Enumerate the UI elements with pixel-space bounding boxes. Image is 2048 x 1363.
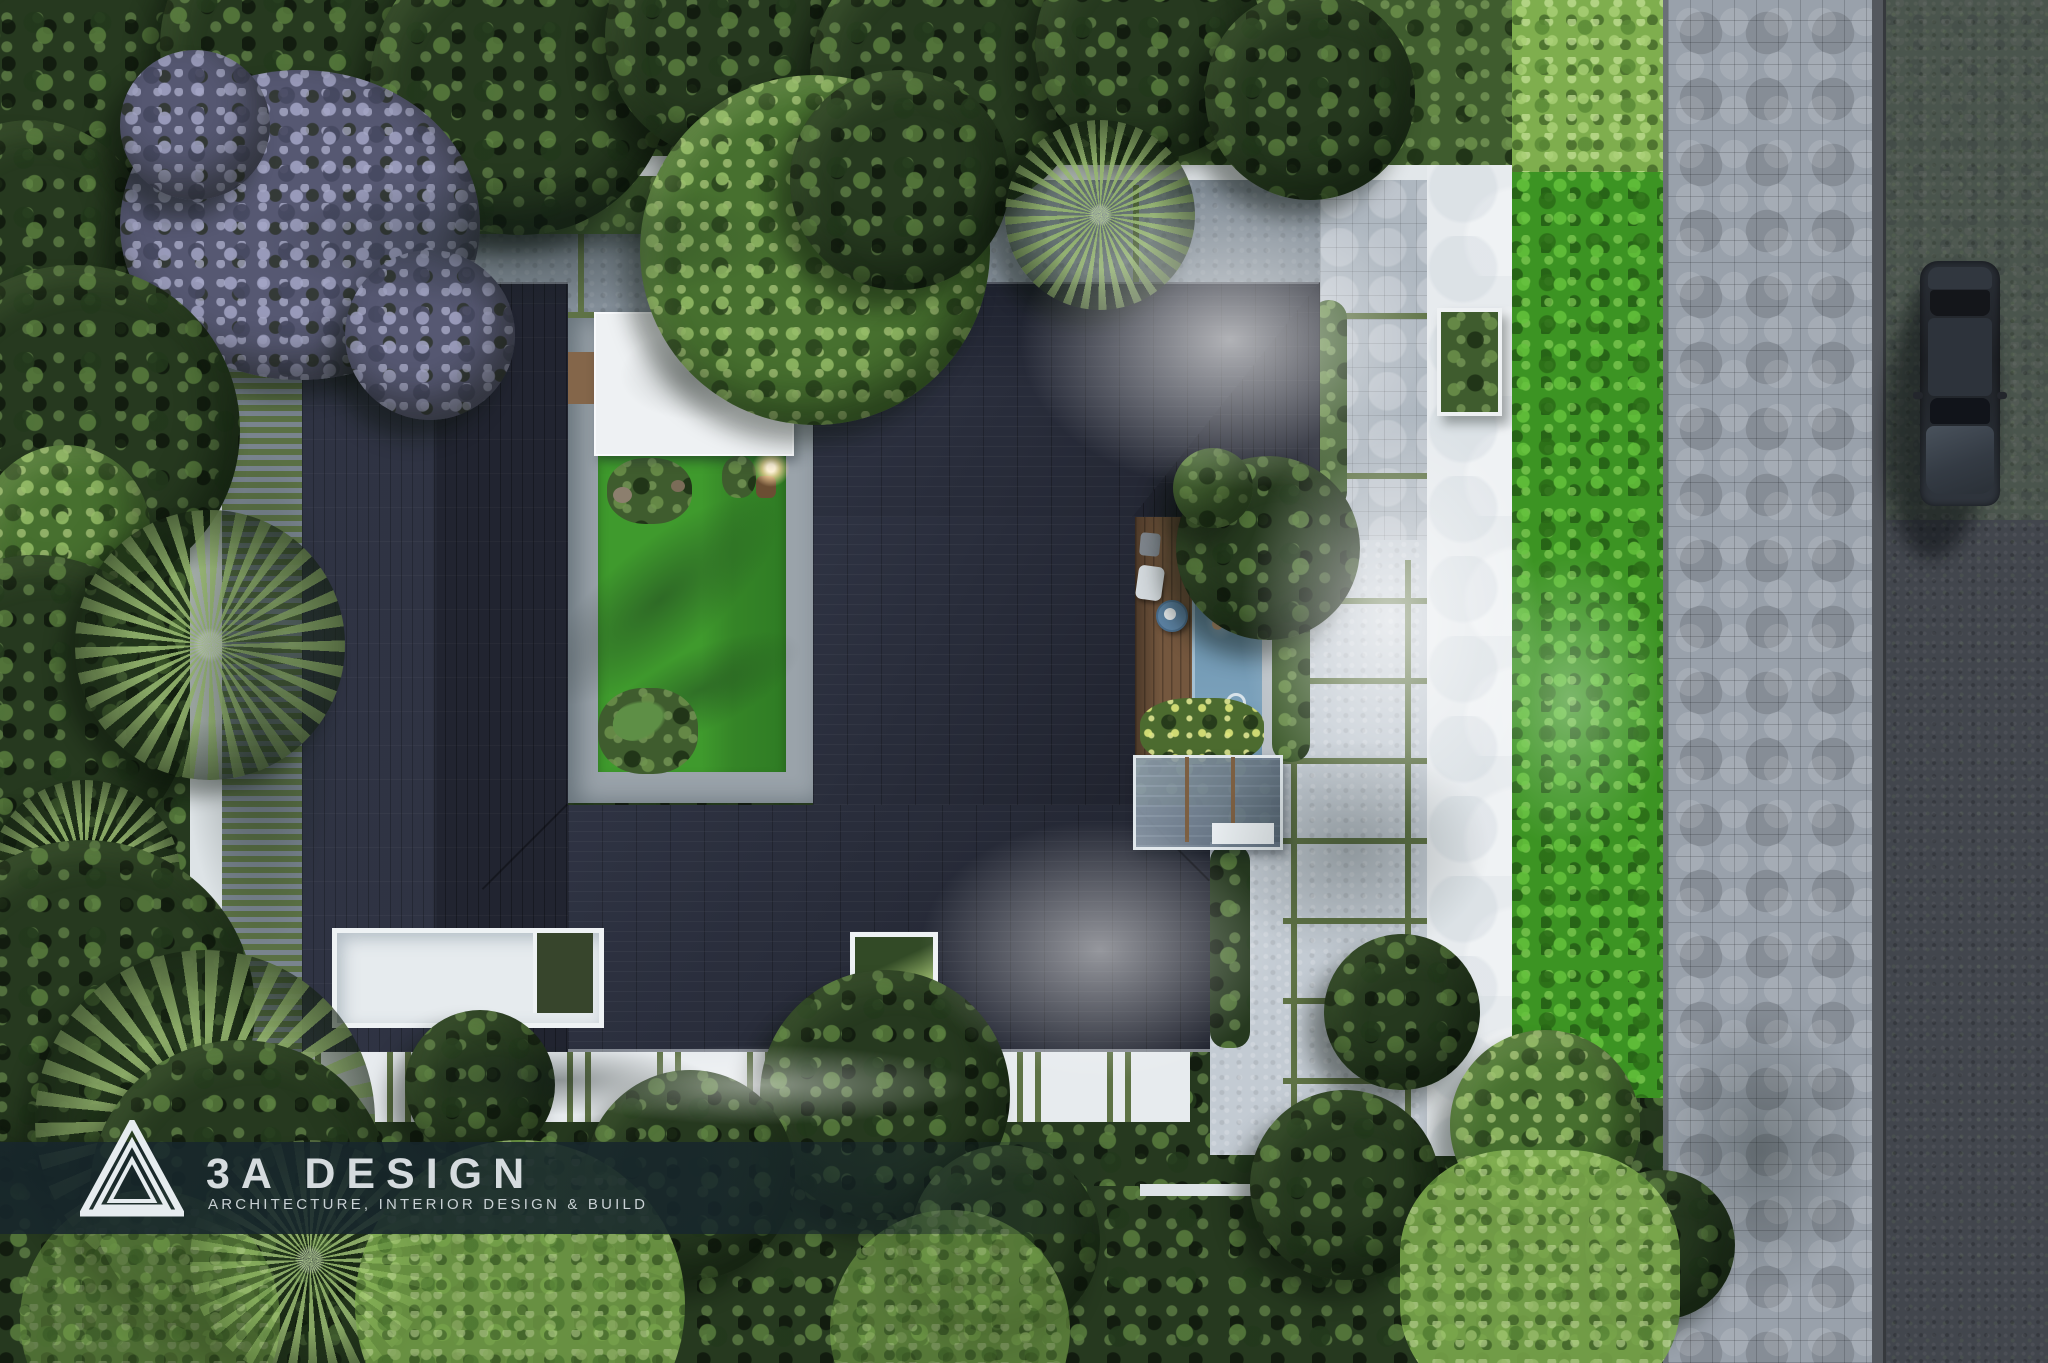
table-tray	[1164, 608, 1176, 620]
cast-shadow	[1210, 740, 1490, 960]
deck-lounger	[1135, 564, 1165, 601]
car-mirror	[1913, 392, 1923, 399]
road-curb	[1872, 0, 1886, 1363]
walkway-planter	[1437, 308, 1502, 416]
cast-shadow	[180, 450, 340, 950]
sunlight-wash	[1470, 550, 1670, 850]
car-mirror	[1997, 392, 2007, 399]
parked-car	[1885, 240, 2045, 570]
garden-rock	[671, 480, 685, 492]
courtyard-shrub	[722, 456, 756, 498]
aerial-site-render: 3A DESIGN ARCHITECTURE, INTERIOR DESIGN …	[0, 0, 2048, 1363]
garden-bench	[566, 352, 596, 404]
car-rear-window	[1930, 290, 1990, 316]
cast-shadow	[260, 170, 780, 310]
car-trunk	[1928, 267, 1992, 289]
purple-blossom-tree	[120, 50, 270, 200]
car-hood	[1926, 426, 1994, 494]
brand-name: 3A DESIGN	[206, 1150, 535, 1199]
car-roof	[1928, 318, 1992, 396]
deck-chair	[1139, 532, 1161, 557]
garden-rock	[613, 487, 632, 503]
roof-center-wing	[813, 517, 1135, 805]
pergola-beam	[1185, 757, 1189, 842]
car-windshield	[1930, 398, 1990, 424]
tree-canopy	[790, 70, 1010, 290]
cast-shadow	[410, 1045, 710, 1115]
front-hedge-top	[1512, 0, 1663, 172]
skylight-large-glass	[533, 933, 593, 1013]
brand-tagline: ARCHITECTURE, INTERIOR DESIGN & BUILD	[208, 1196, 648, 1213]
moss-patch	[1400, 1150, 1680, 1363]
brand-logo-icon	[80, 1120, 184, 1217]
cast-shadow	[1650, 1000, 1870, 1300]
